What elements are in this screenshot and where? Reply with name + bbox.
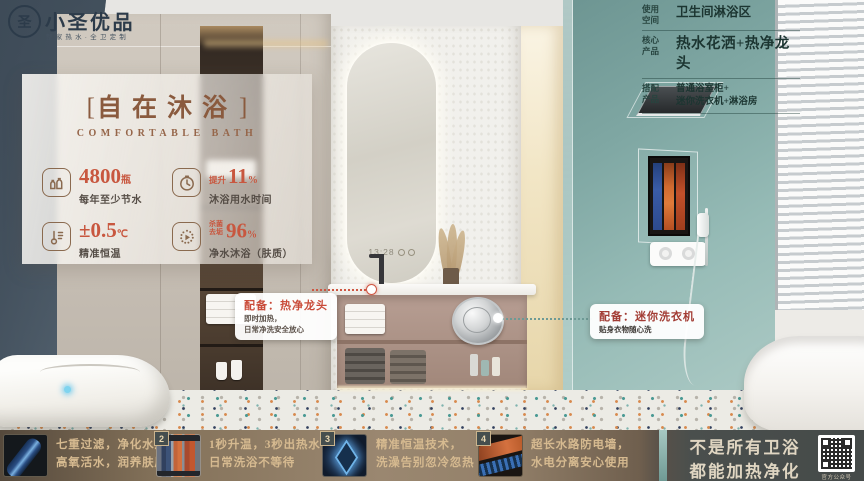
shower-glass-edge: [563, 0, 573, 414]
info-row-matching-product: 搭配产品 普通浴室柜+迷你洗衣机+淋浴房: [642, 79, 800, 114]
feature-line: 超长水路防电墙，: [531, 437, 629, 455]
feature-desc: 精准恒温: [79, 245, 128, 260]
feature-unit: %: [247, 229, 257, 240]
storage-basket: [345, 348, 385, 384]
info-label: 核心产品: [642, 35, 676, 57]
feature-constant-temp: ±0.5℃ 精准恒温: [42, 220, 170, 260]
cup: [216, 362, 227, 380]
prefix-line: 去垢: [209, 228, 223, 236]
purify-icon: [172, 222, 201, 251]
mirror-light-icon: [408, 249, 415, 256]
shower-dial: [659, 247, 672, 260]
feature-unit: ℃: [117, 229, 128, 240]
feature-desc: 每年至少节水: [79, 191, 142, 206]
toiletry-bottle: [470, 354, 478, 376]
info-label: 使用空间: [642, 4, 676, 26]
label-line: 产品: [642, 94, 659, 104]
red-tube: [676, 163, 685, 230]
cup: [231, 360, 242, 380]
feature-value: ±0.5: [79, 218, 117, 242]
brand-logo-icon: 圣: [8, 5, 41, 38]
label-line: 使用: [642, 4, 659, 14]
title-bracket: ]: [239, 94, 247, 121]
slogan-line: 都能加热净化: [676, 460, 814, 481]
water-bottles-icon: [42, 168, 71, 197]
feature-unit: 瓶: [121, 175, 131, 186]
feature-value: 96: [226, 218, 247, 242]
item-number-badge: 3: [320, 431, 335, 446]
cabinet-led-glow: [204, 40, 328, 47]
feature-glass-panel: [自在沐浴] COMFORTABLE BATH 4800瓶 每年至少节水: [22, 74, 312, 264]
feature-line: 精准恒温技术，: [376, 437, 474, 455]
callout-line: 日常净洗安全放心: [244, 324, 328, 335]
item-number-badge: 2: [154, 431, 169, 446]
hand-shower-head: [697, 213, 709, 237]
label-line: 核心: [642, 35, 659, 45]
feature-time-saving: 提升11% 沐浴用水时间: [172, 166, 300, 206]
feature-item-text: 超长水路防电墙， 水电分离安心使用: [531, 437, 629, 473]
feature-line: 1秒升温，3秒出热水，: [209, 437, 333, 455]
item-number-badge: 4: [476, 431, 491, 446]
label-line: 搭配: [642, 83, 659, 93]
callout-heating-faucet: 配备：热净龙头 即时加热， 日常净洗安全放心: [235, 293, 337, 340]
callout-line: 即时加热，: [244, 313, 328, 324]
feature-desc: 沐浴用水时间: [209, 191, 272, 206]
qr-eye: [821, 460, 830, 469]
callout-leader-line: [502, 318, 592, 320]
prefix-line: 杀菌: [209, 220, 223, 228]
feature-line: 日常洗浴不等待: [209, 455, 333, 473]
feature-prefix: 提升: [209, 175, 226, 185]
toilet-lid-seam: [40, 364, 140, 380]
toilet-indicator-light: [64, 386, 71, 393]
callout-anchor-dot: [366, 284, 377, 295]
callout-leader-line: [312, 289, 370, 291]
feature-value: 11: [228, 164, 248, 188]
thermometer-icon: [42, 222, 71, 251]
towel-stack: [345, 304, 385, 334]
info-label: 搭配产品: [642, 83, 676, 105]
qr-label: 官方公众号: [812, 473, 861, 481]
qr-pattern: [821, 438, 852, 469]
info-row-space: 使用空间 卫生间淋浴区: [642, 0, 800, 31]
feature-unit: %: [248, 175, 258, 186]
label-line: 产品: [642, 46, 659, 56]
led-mirror: 13:28: [347, 43, 436, 283]
poster-canvas: 13:28 圣 小圣优品 整家热水·全卫定制 [自在沐浴] COMFORTA: [0, 0, 864, 481]
feature-item-text: 精准恒温技术， 洗澡告别忽冷忽热: [376, 437, 474, 473]
slogan-line: 不是所有卫浴: [676, 436, 814, 460]
toiletry-bottle: [492, 357, 500, 376]
niche-shelf: [200, 288, 263, 291]
feature-purify: 杀菌去垢96% 净水沐浴（肤质）: [172, 220, 300, 260]
feature-water-saving: 4800瓶 每年至少节水: [42, 166, 170, 206]
callout-anchor-dot: [493, 313, 503, 323]
bathtub: [744, 336, 864, 432]
slogan: 不是所有卫浴 都能加热净化: [676, 436, 814, 481]
mirror-clock: 13:28: [347, 247, 436, 257]
heating-element-display: [648, 156, 690, 236]
bar-divider: [659, 430, 667, 481]
callout-title: 配备：热净龙头: [244, 297, 328, 313]
info-row-core-product: 核心产品 热水花洒+热净龙头: [642, 31, 800, 79]
vanity-shelf: [337, 340, 527, 344]
info-value: 普通浴室柜+迷你洗衣机+淋浴房: [676, 83, 800, 109]
washer-door: [463, 307, 491, 333]
value-line: 迷你洗衣机+淋浴房: [676, 97, 757, 107]
panel-title: [自在沐浴]: [22, 88, 312, 124]
qr-eye: [843, 438, 852, 447]
warm-light-panel: [521, 26, 563, 390]
shower-dial: [682, 247, 695, 260]
title-bracket: [: [87, 94, 95, 121]
feature-value: 4800: [79, 164, 121, 188]
niche-shelf: [200, 344, 263, 347]
value-line: 普通浴室柜+: [676, 84, 729, 94]
qr-code: [818, 435, 855, 472]
label-line: 空间: [642, 15, 659, 25]
callout-title: 配备：迷你洗衣机: [599, 308, 695, 324]
orange-tube: [664, 163, 674, 230]
callout-mini-washer: 配备：迷你洗衣机 贴身衣物随心洗: [590, 304, 704, 339]
toiletry-bottle: [481, 360, 489, 376]
info-value: 热水花洒+热净龙头: [676, 35, 800, 74]
feature-item-text: 1秒升温，3秒出热水， 日常洗浴不等待: [209, 437, 333, 473]
blue-tube: [653, 163, 662, 230]
logo-glyph: 圣: [18, 12, 32, 32]
filter-cartridge-thumbnail: [3, 434, 48, 477]
under-cabinet-glow: [337, 386, 527, 393]
product-info-table: 使用空间 卫生间淋浴区 核心产品 热水花洒+热净龙头 搭配产品 普通浴室柜+迷你…: [642, 0, 800, 114]
title-text: 自在沐浴: [97, 95, 237, 122]
faucet: [379, 254, 384, 286]
feature-line: 洗澡告别忽冷忽热: [376, 455, 474, 473]
feature-line: 水电分离安心使用: [531, 455, 629, 473]
info-value: 卫生间淋浴区: [676, 4, 800, 21]
storage-basket: [390, 350, 426, 384]
mirror-defog-icon: [398, 249, 405, 256]
qr-eye: [821, 438, 830, 447]
callout-line: 贴身衣物随心洗: [599, 324, 695, 335]
feature-desc: 净水沐浴（肤质）: [209, 245, 293, 260]
brand-tagline: 整家热水·全卫定制: [46, 31, 129, 41]
panel-subtitle: COMFORTABLE BATH: [22, 128, 312, 139]
timer-icon: [172, 168, 201, 197]
feature-prefix: 杀菌去垢: [209, 220, 223, 237]
